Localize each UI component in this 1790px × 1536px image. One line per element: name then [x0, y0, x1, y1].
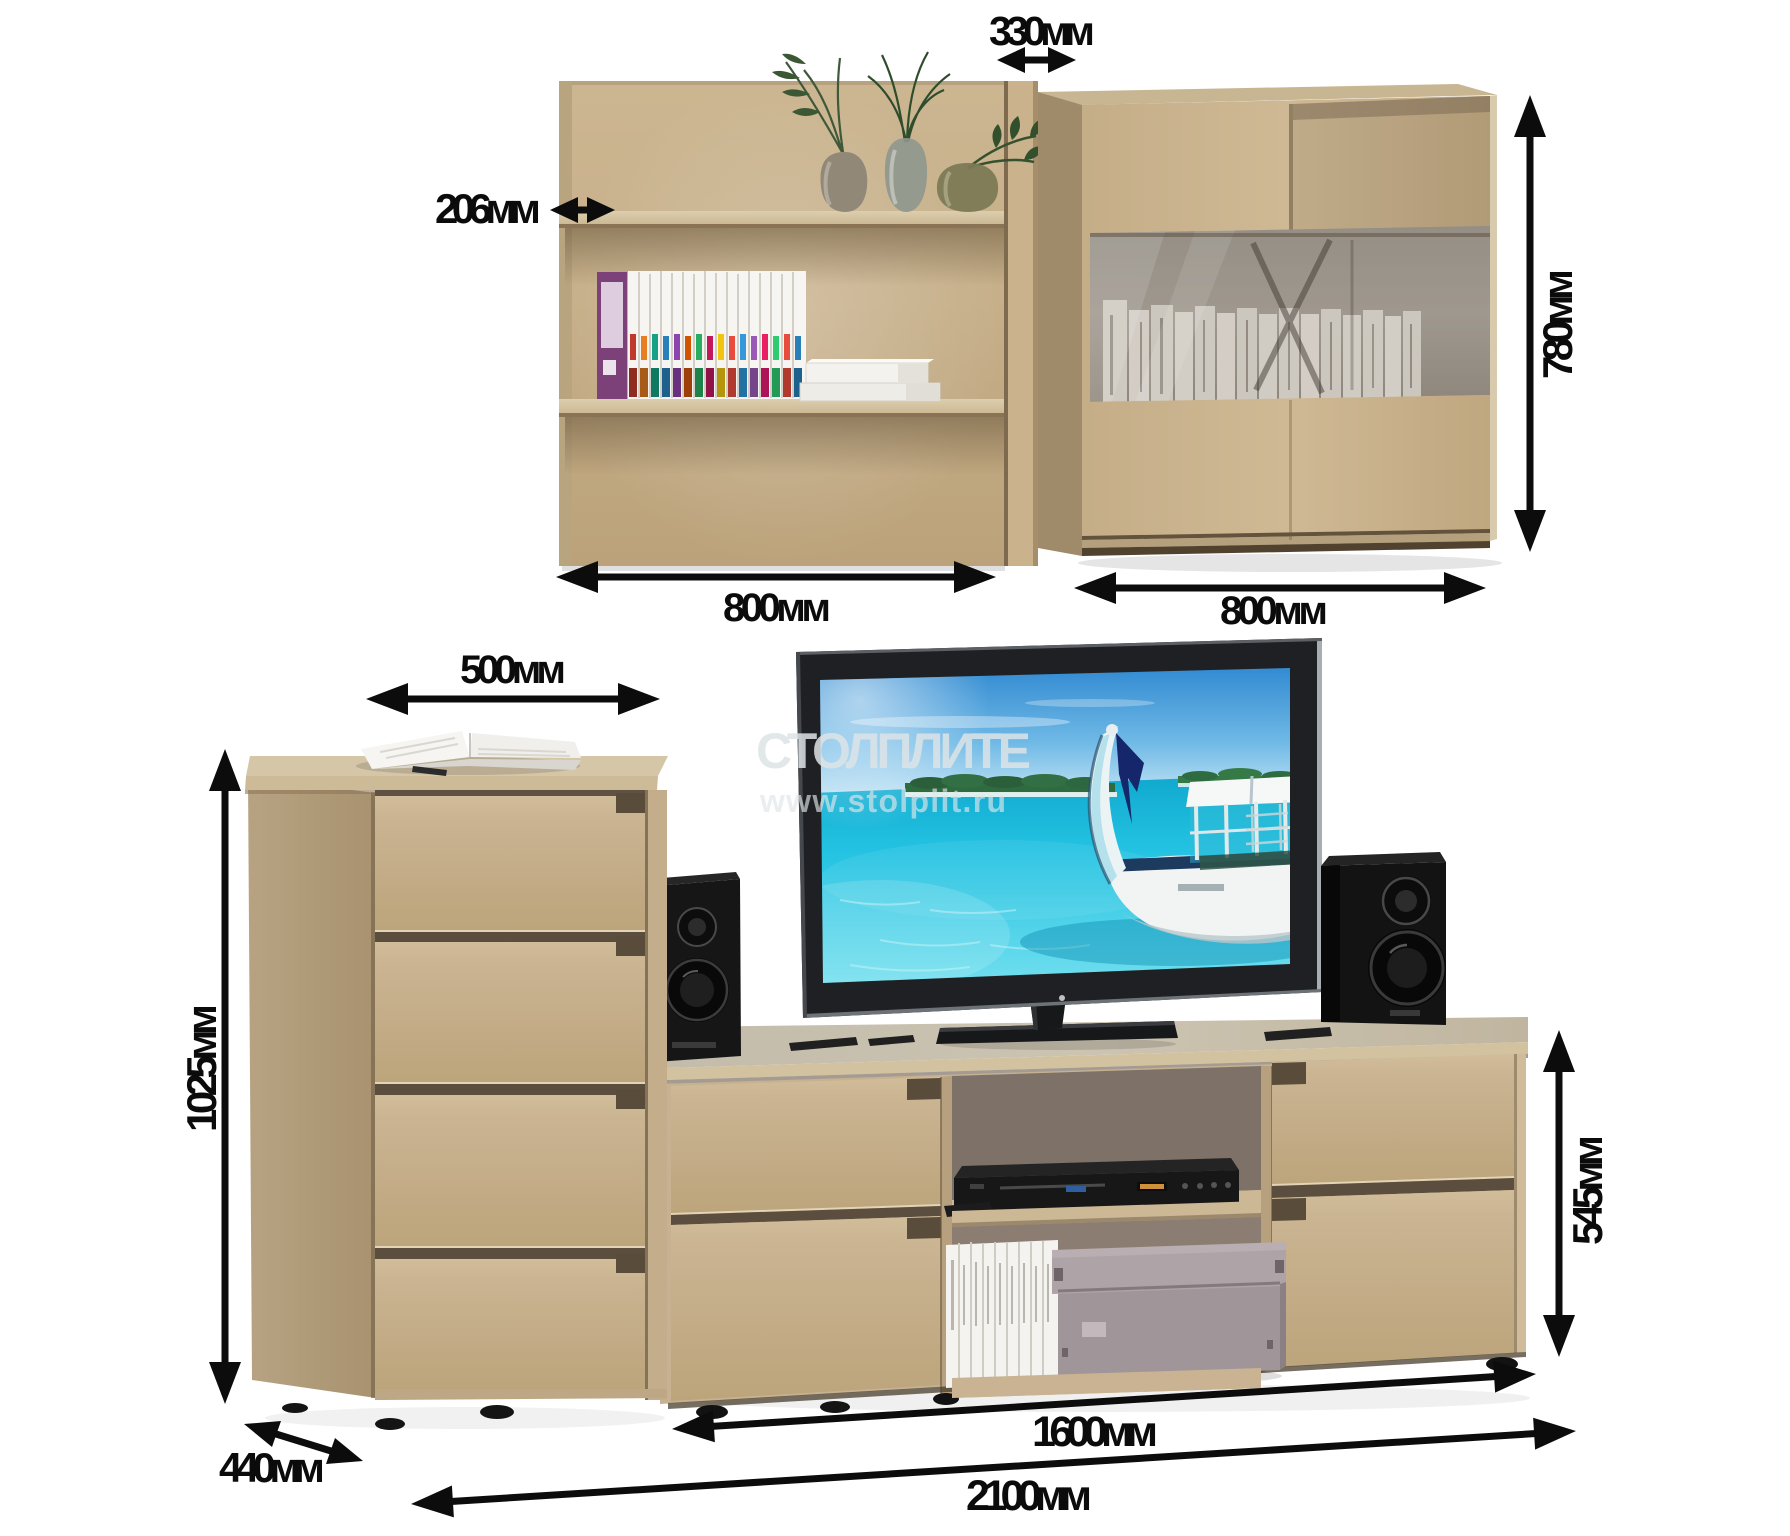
svg-text:800мм: 800мм — [1220, 589, 1328, 633]
svg-text:440мм: 440мм — [219, 1444, 325, 1491]
svg-text:330мм: 330мм — [989, 8, 1095, 54]
svg-text:206мм: 206мм — [435, 185, 541, 232]
svg-text:800мм: 800мм — [723, 586, 831, 630]
svg-text:СТОЛПЛИТЕ: СТОЛПЛИТЕ — [756, 723, 1032, 779]
svg-text:1600мм: 1600мм — [1032, 1408, 1158, 1456]
svg-text:www.stolplit.ru: www.stolplit.ru — [759, 783, 1010, 819]
svg-text:2100мм: 2100мм — [966, 1472, 1092, 1520]
svg-text:780мм: 780мм — [1534, 269, 1581, 379]
svg-text:1025мм: 1025мм — [178, 1004, 225, 1132]
svg-text:500мм: 500мм — [460, 648, 566, 692]
svg-text:545мм: 545мм — [1564, 1135, 1611, 1245]
